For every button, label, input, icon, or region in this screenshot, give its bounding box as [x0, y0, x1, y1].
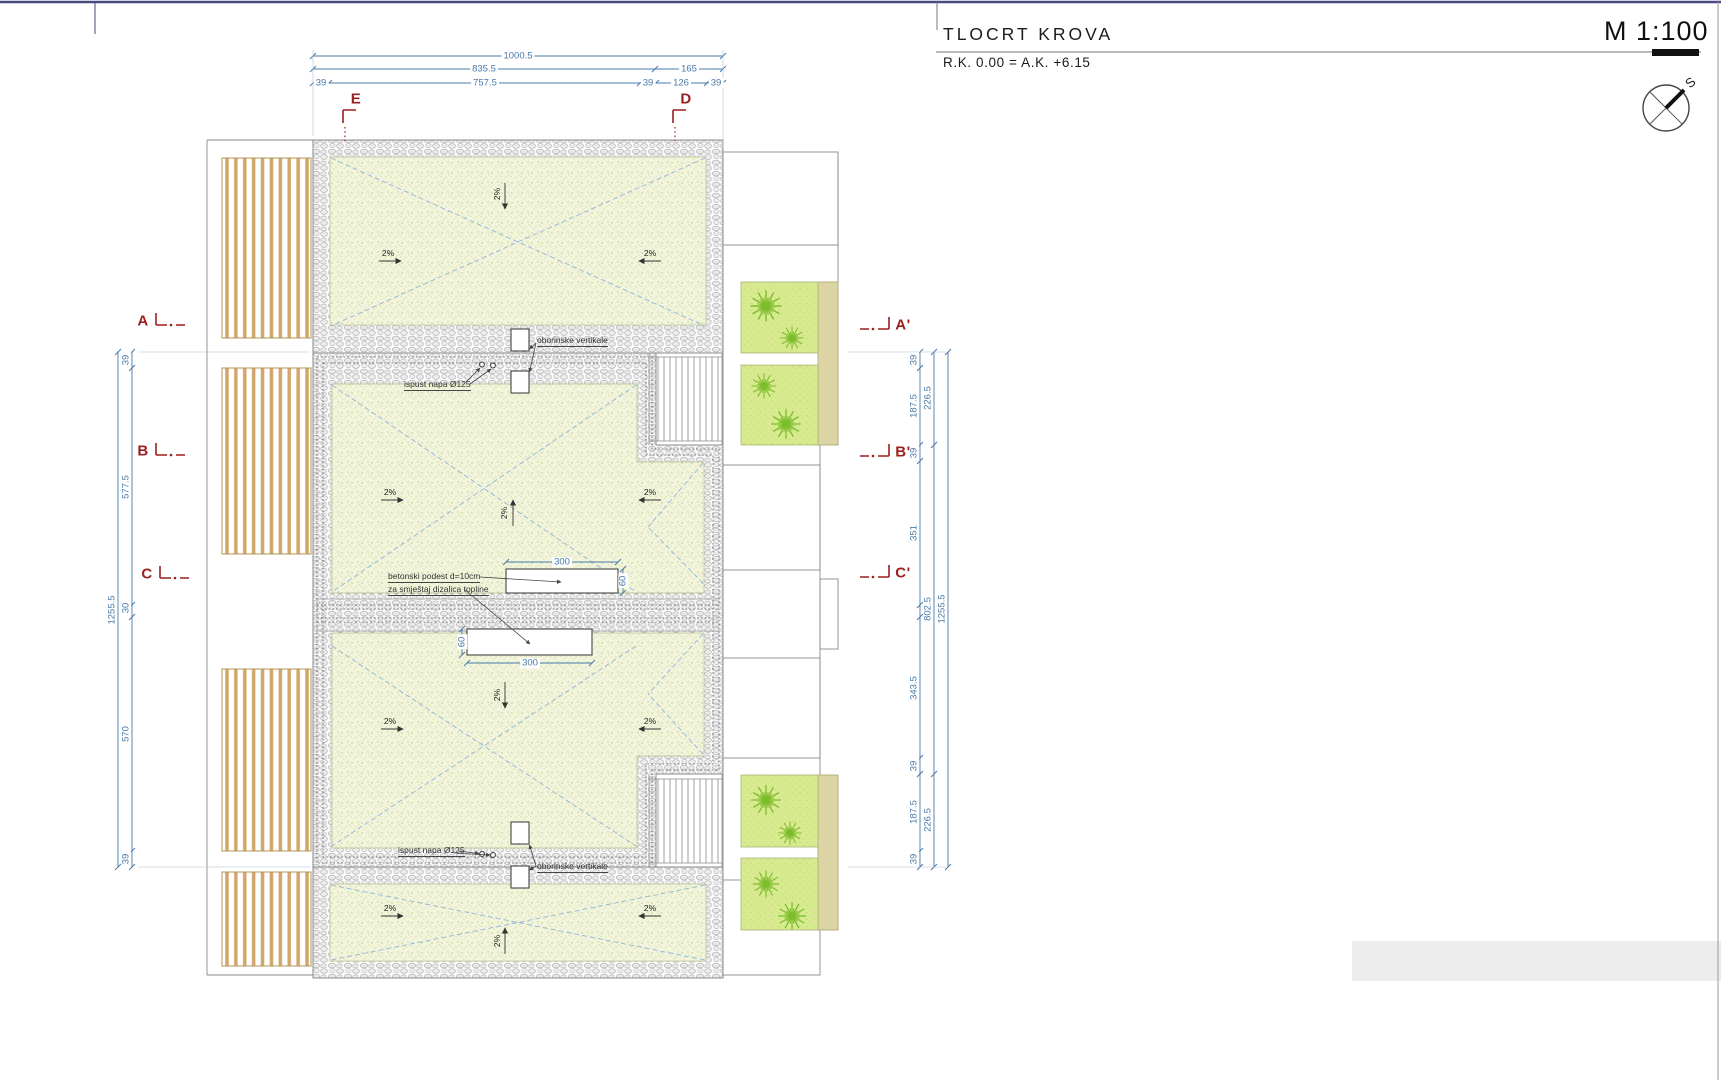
section-marker-a: A [137, 314, 148, 329]
dim-label: 187.5 [909, 798, 919, 826]
north-compass-icon [1643, 85, 1689, 131]
slope-label: 2% [384, 488, 396, 497]
slope-label: 2% [493, 935, 502, 947]
dim-label: 226.5 [923, 806, 933, 834]
slope-label: 2% [644, 717, 656, 726]
stairs-lower [649, 774, 722, 867]
dim-label: 343.5 [909, 674, 919, 702]
note-drain-bottom: oborinske vertikale [537, 862, 608, 873]
dim-label: 577.5 [121, 473, 131, 501]
dim-label: 39 [909, 852, 919, 867]
dim-label: 570 [121, 724, 131, 744]
top-roof [313, 140, 723, 353]
right-bump-out [820, 579, 838, 649]
dim-label: 126 [671, 78, 691, 88]
note-podest-line2: za smještaj dizalica topline [388, 585, 489, 596]
dim-label: 39 [909, 353, 919, 368]
slope-label: 2% [500, 507, 509, 519]
dim-label: 1000.5 [501, 51, 534, 61]
stairs-upper [649, 353, 722, 445]
section-marker-c: C [141, 567, 152, 582]
section-marker-d: D [680, 92, 691, 107]
section-marker-c2: C' [895, 566, 910, 581]
left-wing-louvres [207, 140, 313, 975]
section-marker-b2: B' [895, 445, 910, 460]
dim-label: 39 [121, 353, 131, 368]
dim-label: 300 [552, 557, 572, 567]
dim-label: 1255.5 [937, 592, 947, 625]
dim-label: 226.5 [923, 384, 933, 412]
watermark-area [1352, 941, 1721, 981]
elevation-note: R.K. 0.00 = A.K. +6.15 [943, 56, 1091, 70]
scale-label: M 1:100 [1604, 18, 1709, 45]
dim-label: 60 [457, 635, 467, 650]
slope-label: 2% [644, 488, 656, 497]
dim-label: 39 [909, 759, 919, 774]
dim-label: 802.5 [923, 595, 933, 623]
dim-label: 351 [909, 523, 919, 543]
dim-label: 39 [314, 78, 329, 88]
dim-label: 39 [709, 78, 724, 88]
section-marker-e: E [351, 92, 362, 107]
note-outlet-bottom: ispust napa Ø125 [398, 846, 465, 857]
section-marker-b: B [137, 444, 148, 459]
dim-label: 30 [121, 601, 131, 616]
slope-label: 2% [382, 249, 394, 258]
dim-label: 835.5 [470, 64, 498, 74]
note-outlet-top: ispust napa Ø125 [404, 380, 471, 391]
slope-label: 2% [493, 188, 502, 200]
slope-label: 2% [384, 904, 396, 913]
dim-label: 757.5 [471, 78, 499, 88]
drawing-sheet: TLOCRT KROVA R.K. 0.00 = A.K. +6.15 M 1:… [0, 0, 1721, 1080]
dim-label: 300 [520, 658, 540, 668]
dim-label: 165 [679, 64, 699, 74]
note-podest-line1: betonski podest d=10cm [388, 572, 480, 583]
roof-plan-drawing [0, 0, 1721, 1080]
dim-label: 39 [641, 78, 656, 88]
dim-label: 60 [618, 574, 628, 589]
slope-label: 2% [644, 249, 656, 258]
dim-label: 1255.5 [107, 593, 117, 626]
slope-label: 2% [384, 717, 396, 726]
section-marker-a2: A' [895, 318, 910, 333]
slope-label: 2% [644, 904, 656, 913]
dim-label: 39 [121, 852, 131, 867]
dim-label: 187.5 [909, 392, 919, 420]
note-drain-top: oborinske vertikale [537, 336, 608, 347]
drawing-title: TLOCRT KROVA [943, 26, 1113, 44]
slope-label: 2% [493, 689, 502, 701]
middle-roof [313, 353, 723, 867]
scale-underline-bar [1652, 49, 1699, 56]
